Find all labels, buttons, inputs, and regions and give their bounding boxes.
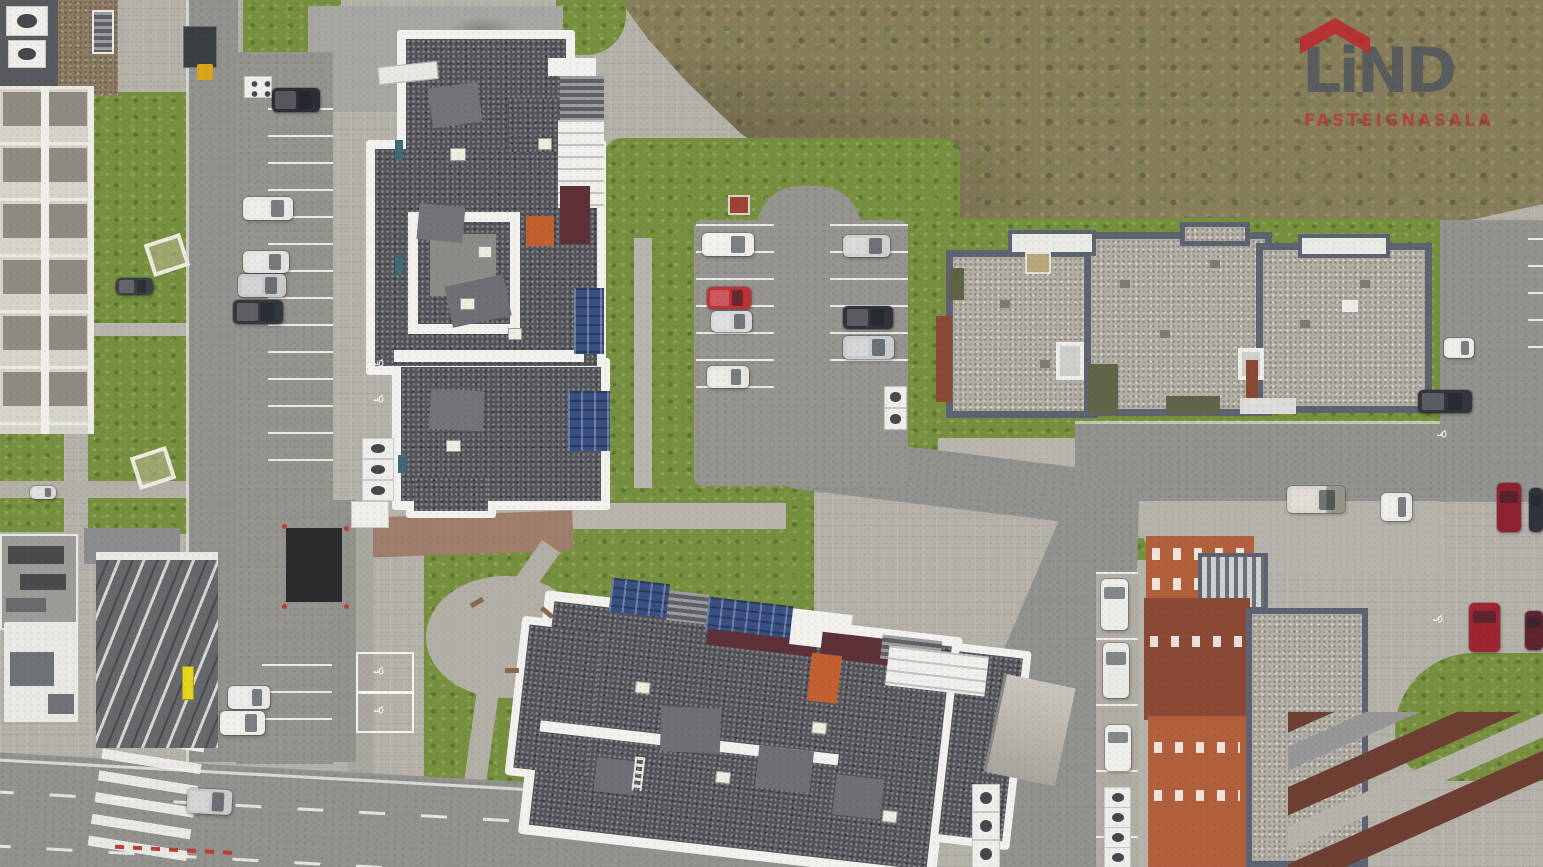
window-row — [1154, 742, 1240, 753]
roof-vent — [460, 298, 475, 310]
car — [116, 278, 153, 295]
rooftop-unit — [92, 10, 114, 54]
balcony-slab — [548, 58, 596, 76]
parking-lines — [262, 664, 332, 744]
building-b-roof — [1256, 243, 1432, 413]
roof-vent — [446, 440, 461, 452]
car — [272, 88, 320, 112]
roof-joint-strip — [394, 350, 584, 362]
roof-vent — [1160, 330, 1170, 338]
rooftop-hvac — [8, 40, 46, 68]
garage-ramp — [1240, 398, 1296, 414]
car — [243, 251, 289, 273]
facade-louvers — [560, 76, 604, 122]
car — [711, 311, 752, 332]
car — [843, 306, 893, 329]
car — [1105, 725, 1131, 771]
waste-station — [1104, 787, 1131, 808]
wheelchair-icon: ♿ — [1436, 428, 1449, 440]
balcony-blue-panels — [574, 288, 604, 354]
wheelchair-icon: ♿ — [373, 393, 386, 405]
waste-station — [362, 438, 394, 459]
car — [1103, 643, 1129, 698]
traffic-marker — [344, 604, 349, 609]
roof-vent — [450, 148, 466, 161]
balcony-slab — [1008, 230, 1096, 256]
waste-station — [1104, 847, 1131, 867]
wheelchair-icon: ♿ — [373, 357, 386, 369]
car — [843, 235, 890, 257]
car — [243, 197, 293, 220]
roof-vent — [1300, 320, 1310, 328]
building-a-roof — [414, 477, 488, 511]
rooftop-unit — [6, 598, 46, 612]
utility-cabinet — [351, 501, 389, 528]
balcony-blue-panels — [609, 578, 670, 618]
bench — [505, 668, 519, 673]
car — [1497, 483, 1521, 532]
rooftop-unit — [593, 757, 637, 795]
rowhouses-southeast — [1288, 712, 1543, 867]
storage-container — [183, 26, 217, 68]
traffic-marker — [282, 604, 287, 609]
waste-station — [362, 459, 394, 480]
waste-station — [884, 386, 907, 408]
balcony-blue-panels — [568, 391, 610, 451]
balcony-slab — [1298, 234, 1390, 258]
car — [1101, 579, 1128, 630]
facade-maroon-block — [560, 186, 590, 244]
car — [238, 274, 286, 297]
van — [702, 233, 754, 256]
waste-station — [1104, 807, 1131, 828]
apartment-building-left — [0, 86, 94, 434]
balcony-column — [3, 92, 41, 428]
car — [1525, 611, 1543, 650]
roof-vent — [811, 721, 827, 735]
waste-station — [972, 784, 1000, 812]
waste-station — [972, 840, 1000, 867]
rooftop-unit — [8, 546, 64, 564]
waste-station — [362, 480, 394, 501]
waste-station — [884, 408, 907, 430]
car — [30, 486, 56, 499]
car — [233, 300, 283, 324]
rowhouse-roof — [1288, 712, 1543, 820]
entrance-canopy — [398, 455, 406, 473]
wheelchair-icon: ♿ — [373, 704, 386, 716]
rooftop-unit — [660, 706, 722, 754]
building-b-roof — [946, 250, 1098, 418]
waste-station — [1104, 827, 1131, 848]
roof-vent — [538, 138, 552, 150]
hvac-trailer — [244, 76, 272, 98]
parking-lines — [1528, 238, 1543, 368]
car — [1529, 488, 1543, 532]
lind-logo: LiND FASTEIGNASALA — [1296, 14, 1521, 136]
roof-vent — [1120, 280, 1130, 288]
new-asphalt-patch — [286, 528, 342, 602]
traffic-marker — [344, 526, 349, 531]
window-row — [1150, 636, 1244, 647]
car — [220, 711, 265, 735]
rooftop-hvac — [6, 6, 48, 36]
window-row — [1154, 790, 1240, 801]
roof-vent — [635, 681, 651, 695]
facade-divider — [41, 86, 49, 434]
commercial-roof — [0, 534, 78, 630]
wheelchair-icon: ♿ — [373, 665, 386, 677]
car — [1444, 338, 1474, 358]
roof-edge — [96, 552, 218, 560]
rooftop-unit — [427, 82, 482, 129]
waste-station — [972, 812, 1000, 840]
building-b-roof-bump — [1180, 222, 1250, 246]
window-band — [10, 652, 54, 686]
courtyard-cross-path — [90, 323, 196, 336]
car — [228, 686, 270, 709]
commercial-building-striped — [96, 552, 218, 748]
car — [707, 366, 749, 388]
building-corner-dark — [0, 0, 60, 100]
roof-vent — [715, 771, 731, 785]
entrance-canopy — [395, 255, 403, 275]
skylight — [1342, 300, 1358, 312]
inner-courtyard — [1166, 396, 1220, 414]
roof-vent — [1000, 300, 1010, 308]
car — [1418, 390, 1472, 413]
roof-vent — [1360, 280, 1370, 288]
car-on-road — [186, 788, 232, 815]
traffic-marker — [282, 524, 287, 529]
entrance-canopy — [395, 140, 403, 160]
inner-courtyard — [1088, 364, 1118, 414]
roof-vent — [882, 810, 898, 824]
skylight — [1056, 342, 1084, 380]
roof-vent — [1040, 360, 1050, 368]
wheelchair-icon: ♿ — [1432, 613, 1445, 625]
facade-orange-accent — [807, 653, 842, 704]
balcony-column — [49, 92, 87, 428]
commercial-building-white — [4, 622, 78, 722]
car — [1469, 603, 1500, 652]
rooftop-unit — [429, 389, 485, 432]
car — [1381, 493, 1412, 521]
brand-wordmark: LiND — [1302, 40, 1454, 102]
building-d-rust-deck — [1144, 598, 1250, 720]
excavator — [197, 64, 213, 80]
car — [707, 287, 751, 309]
rooftop-unit — [832, 774, 884, 819]
red-play-box — [728, 195, 750, 215]
brand-tagline: FASTEIGNASALA — [1304, 111, 1494, 130]
facade-olive-section — [950, 268, 964, 300]
yellow-sign — [182, 666, 194, 700]
rooftop-unit — [20, 574, 66, 590]
car — [843, 336, 894, 359]
facade-brick-accent — [936, 316, 952, 402]
facade-edge — [88, 86, 94, 434]
rooftop-unit — [417, 203, 466, 243]
truck-with-trailer — [1287, 486, 1345, 513]
rooftop-unit — [755, 745, 814, 793]
roof-vent — [508, 328, 522, 340]
picnic-table — [1025, 252, 1051, 274]
roof-vent — [478, 246, 492, 258]
window-band — [48, 694, 74, 714]
aerial-photo: ♿ ♿ ♿ ♿ ♿ ♿ LiND FASTEIGNASALA — [0, 0, 1543, 867]
path-east-of-building — [634, 238, 652, 488]
facade-louvers — [666, 590, 709, 624]
facade-orange-accent — [526, 216, 554, 246]
roof-vent — [1210, 260, 1220, 268]
